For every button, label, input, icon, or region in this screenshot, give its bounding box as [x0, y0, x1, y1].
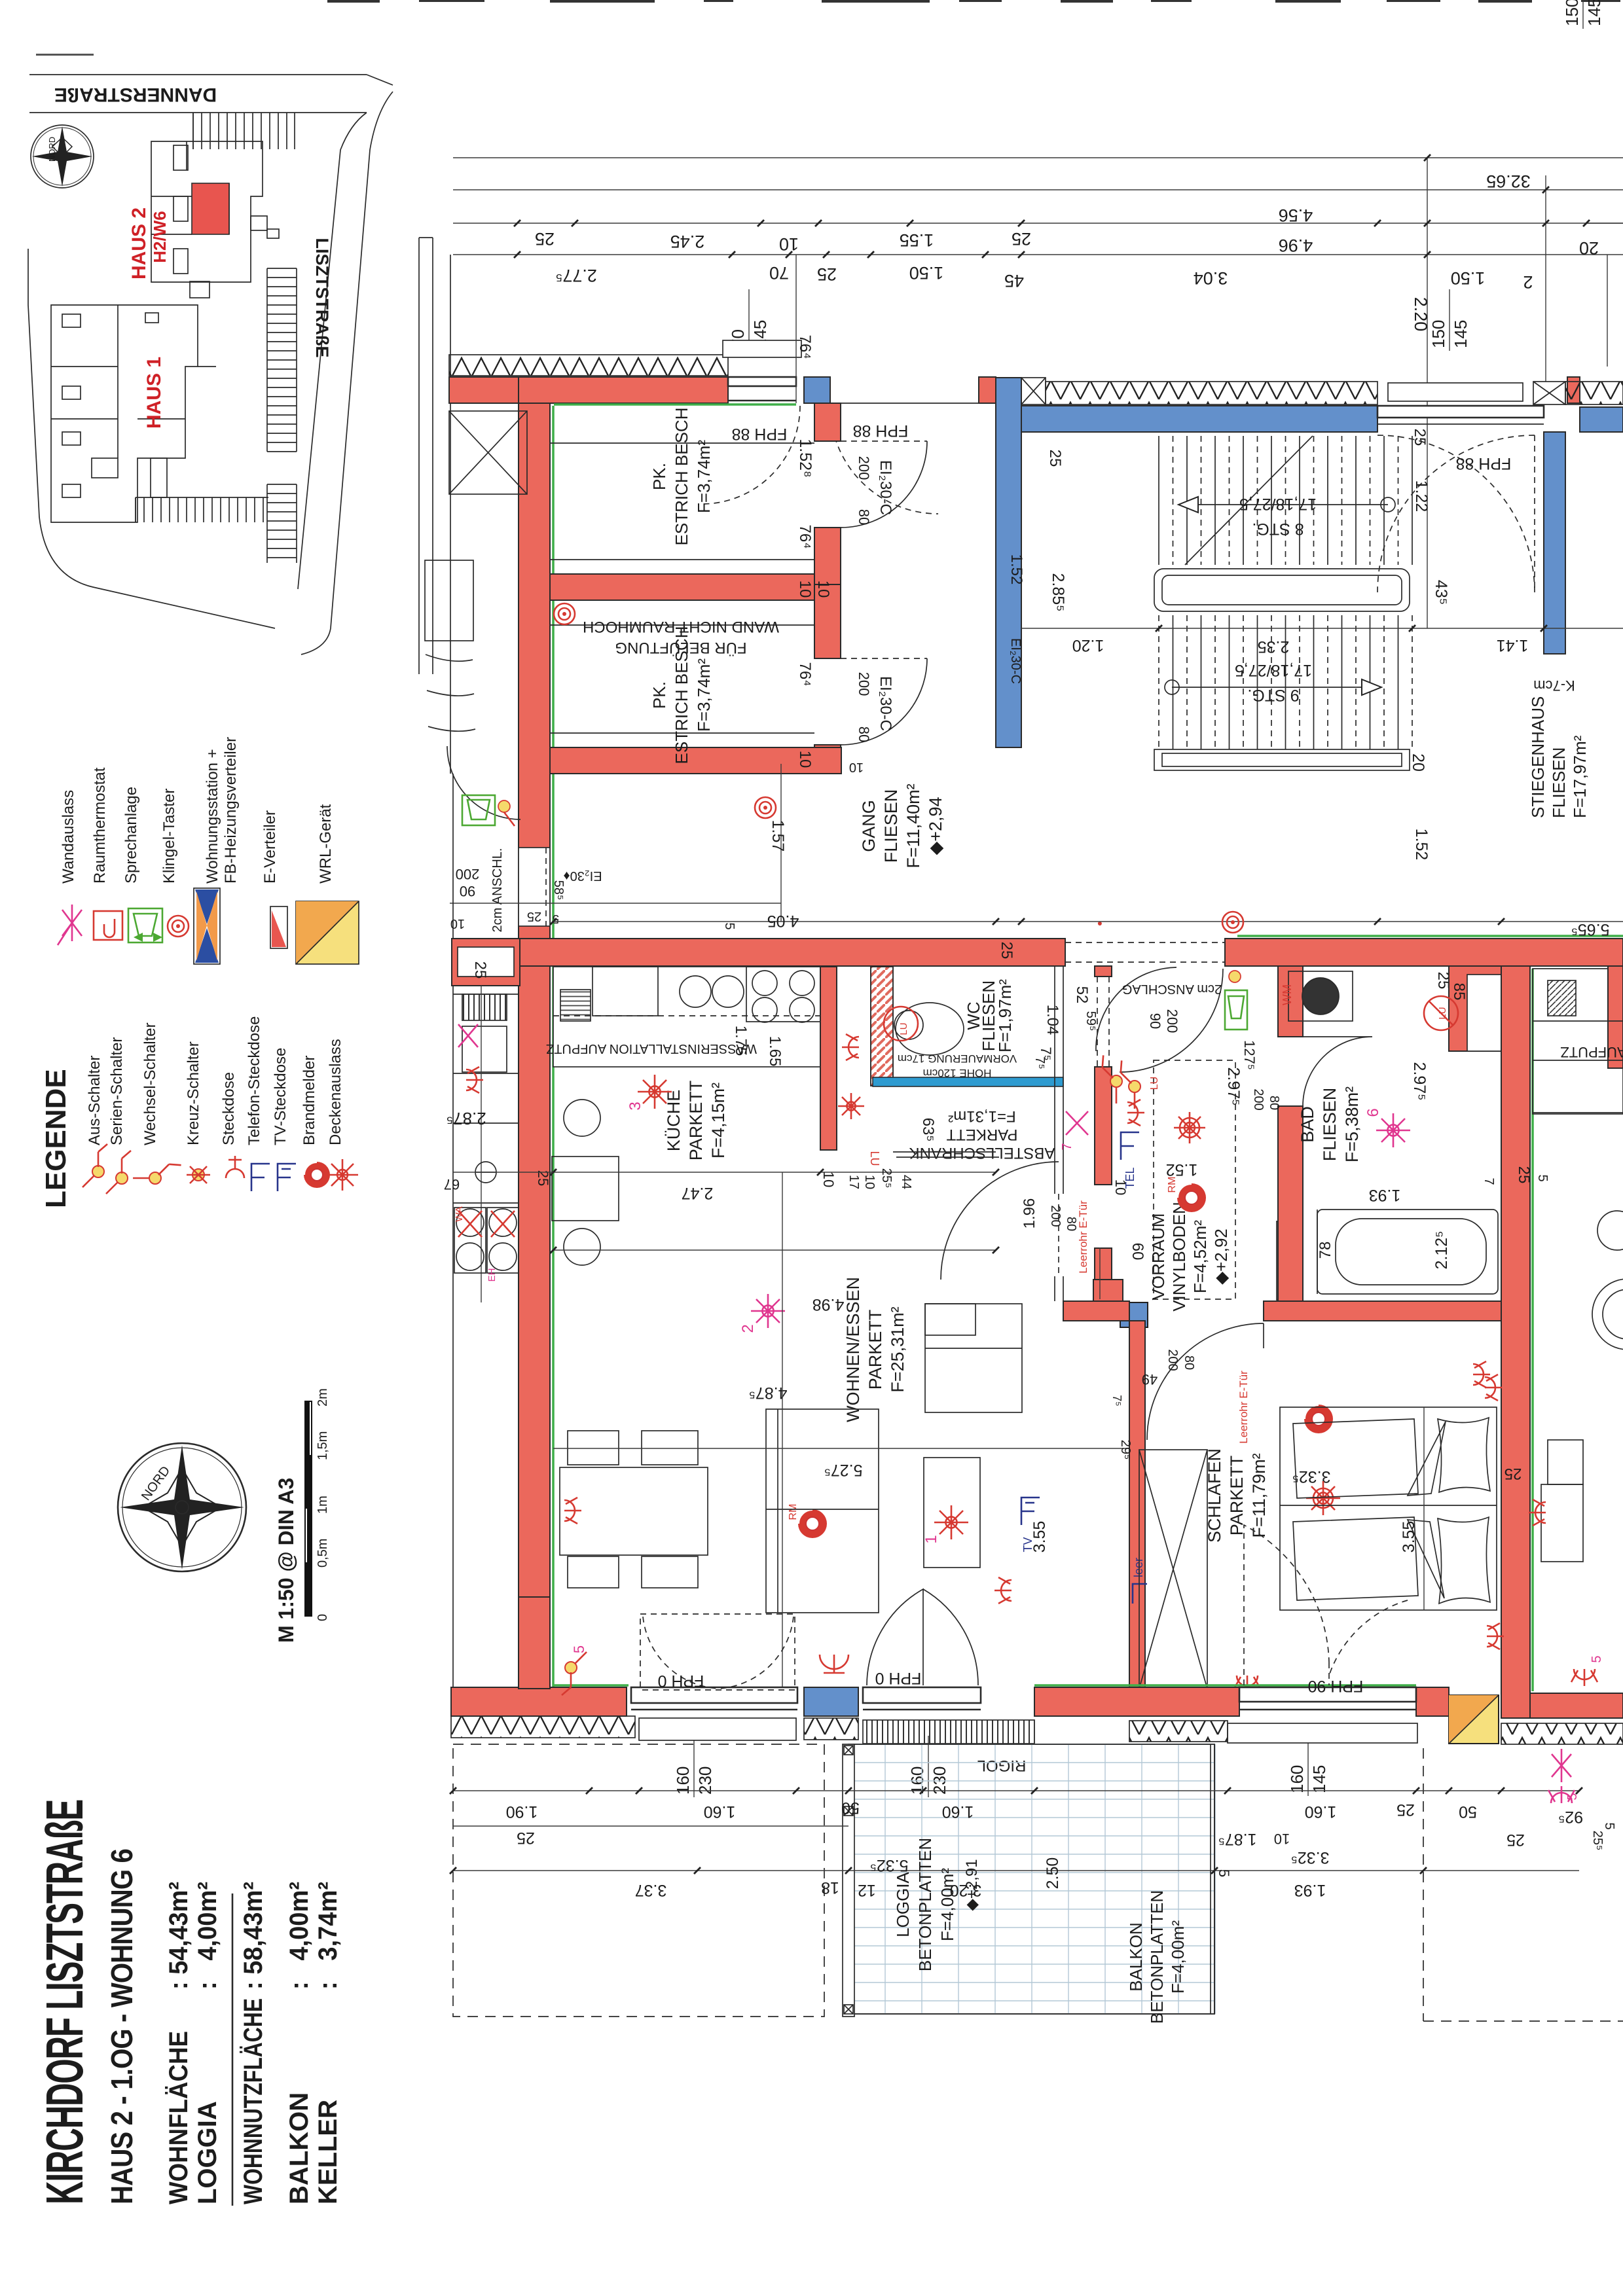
svg-text:TV-Steckdose: TV-Steckdose	[272, 1048, 289, 1145]
svg-text:1.75: 1.75	[732, 1026, 750, 1056]
svg-text:0,5m: 0,5m	[316, 1539, 330, 1568]
svg-text:F=3,74m²: F=3,74m²	[694, 658, 714, 732]
svg-text:25: 25	[1411, 429, 1429, 446]
svg-text:GANG: GANG	[859, 800, 879, 852]
svg-text:2.45: 2.45	[670, 232, 705, 251]
svg-text:5: 5	[1565, 1793, 1580, 1800]
svg-text:25: 25	[1396, 1801, 1415, 1819]
svg-text:KIRCHDORF LISZTSTRAßE: KIRCHDORF LISZTSTRAßE	[35, 1800, 94, 2204]
svg-text:FPH 0: FPH 0	[658, 1672, 704, 1690]
svg-text:1.60: 1.60	[704, 1803, 736, 1821]
svg-text:1.50: 1.50	[1451, 268, 1486, 288]
svg-text:200: 200	[1048, 1205, 1063, 1227]
svg-text:F=4,00m²: F=4,00m²	[938, 1868, 957, 1941]
svg-text:70: 70	[769, 263, 789, 283]
svg-text:EH: EH	[486, 1268, 498, 1282]
svg-text:Klingel-Taster: Klingel-Taster	[160, 789, 178, 884]
svg-text:: 54,43m²: : 54,43m²	[164, 1882, 193, 1990]
svg-text:7: 7	[1060, 1143, 1074, 1150]
svg-text:4.56: 4.56	[1279, 206, 1313, 225]
svg-text:HAUS 2: HAUS 2	[128, 207, 150, 279]
svg-text:LOGGIA: LOGGIA	[193, 2101, 222, 2204]
svg-text:Raumthermostat: Raumthermostat	[91, 767, 109, 884]
svg-text:Deckenauslass: Deckenauslass	[327, 1039, 344, 1145]
svg-text:67: 67	[444, 1176, 460, 1193]
svg-text:1.22: 1.22	[1412, 480, 1431, 512]
svg-text:2.85⁵: 2.85⁵	[1049, 573, 1067, 611]
svg-text:10: 10	[820, 1172, 837, 1187]
svg-text:76⁴: 76⁴	[796, 524, 814, 548]
svg-text:Brandmelder: Brandmelder	[301, 1056, 318, 1145]
svg-text:10: 10	[849, 760, 864, 774]
svg-text:WRL-Gerät: WRL-Gerät	[317, 804, 335, 884]
svg-text:WAND NICHT RAUMHOCH: WAND NICHT RAUMHOCH	[583, 618, 779, 636]
svg-text:leer: leer	[1132, 1558, 1145, 1577]
svg-text:F=1,97m²: F=1,97m²	[995, 979, 1015, 1052]
svg-text:EI₂30-C: EI₂30-C	[877, 460, 894, 515]
svg-text:44: 44	[899, 1175, 913, 1189]
svg-text:8 STG.: 8 STG.	[1252, 520, 1304, 538]
svg-text:29⁵: 29⁵	[1118, 1440, 1133, 1460]
svg-text:25: 25	[517, 1829, 535, 1847]
svg-text:4.98: 4.98	[812, 1295, 845, 1314]
svg-text:3.32⁵: 3.32⁵	[1290, 1848, 1329, 1867]
svg-text:200: 200	[456, 866, 480, 882]
svg-text:160: 160	[1287, 1765, 1307, 1793]
svg-text:Serien-Schalter: Serien-Schalter	[108, 1037, 126, 1145]
svg-text:25⁵: 25⁵	[1590, 1831, 1605, 1851]
svg-text:: 3,74m²: : 3,74m²	[314, 1882, 342, 1990]
svg-text:BETONPLATTEN: BETONPLATTEN	[915, 1838, 935, 1971]
svg-text:76⁴: 76⁴	[796, 662, 814, 686]
svg-text:Telefon-Steckdose: Telefon-Steckdose	[246, 1016, 263, 1145]
svg-text:Wandauslass: Wandauslass	[60, 790, 77, 884]
svg-text:1.93: 1.93	[1294, 1881, 1326, 1899]
svg-text:10: 10	[862, 1175, 877, 1189]
svg-text:1.96: 1.96	[1021, 1198, 1038, 1229]
svg-text:50: 50	[1459, 1803, 1477, 1821]
svg-text:WOHNEN/ESSEN: WOHNEN/ESSEN	[843, 1277, 863, 1422]
svg-text:DANNERSTRAßE: DANNERSTRAßE	[54, 84, 217, 105]
svg-text:200: 200	[1165, 1349, 1180, 1371]
svg-text:PARKETT: PARKETT	[946, 1126, 1017, 1143]
svg-text:BAD: BAD	[1298, 1106, 1317, 1143]
svg-text:Steckdose: Steckdose	[220, 1072, 238, 1145]
svg-text:2m: 2m	[316, 1388, 330, 1407]
svg-text:EI₂30-C: EI₂30-C	[1008, 638, 1023, 684]
svg-text:2.77⁵: 2.77⁵	[555, 266, 597, 285]
svg-text:FB-Heizungsverteiler: FB-Heizungsverteiler	[222, 737, 240, 884]
svg-text:5.32⁵: 5.32⁵	[869, 1856, 908, 1874]
svg-text:5: 5	[571, 1645, 587, 1653]
svg-text:Wohnungsstation +: Wohnungsstation +	[204, 749, 221, 884]
svg-text:1.55: 1.55	[900, 230, 934, 250]
svg-text:1m: 1m	[316, 1496, 330, 1514]
svg-text:25: 25	[998, 942, 1015, 960]
svg-text:150: 150	[1562, 0, 1582, 26]
svg-text:F=11,40m²: F=11,40m²	[903, 783, 923, 868]
svg-text:25: 25	[1046, 450, 1064, 467]
svg-text:1.04: 1.04	[1044, 1005, 1061, 1035]
svg-text:FPH 90: FPH 90	[1308, 1677, 1364, 1695]
svg-text:PARKETT: PARKETT	[686, 1081, 706, 1161]
svg-text:145: 145	[1451, 320, 1470, 348]
svg-text:: 4,00m²: : 4,00m²	[193, 1882, 222, 1990]
svg-text:60: 60	[1129, 1243, 1146, 1261]
svg-text:K-7cm: K-7cm	[1533, 677, 1575, 694]
svg-text:25: 25	[535, 229, 555, 249]
svg-text:FLIESEN: FLIESEN	[1320, 1088, 1340, 1162]
svg-text:78: 78	[1317, 1242, 1334, 1259]
svg-text:3.37: 3.37	[635, 1881, 667, 1899]
svg-text:FPH 88: FPH 88	[732, 425, 788, 443]
svg-text:Wechsel-Schalter: Wechsel-Schalter	[141, 1022, 159, 1145]
svg-text:◆+2,92: ◆+2,92	[1211, 1229, 1231, 1285]
svg-text:20: 20	[1579, 238, 1599, 258]
svg-text:FLIESEN: FLIESEN	[1549, 747, 1569, 818]
svg-text:1.50: 1.50	[909, 263, 944, 283]
svg-text:TEL: TEL	[1123, 1167, 1137, 1189]
svg-text:10: 10	[1274, 1831, 1290, 1847]
svg-text:25: 25	[527, 909, 541, 924]
svg-text:●: ●	[1097, 918, 1103, 928]
svg-text:25⁵: 25⁵	[879, 1168, 894, 1189]
svg-text:200: 200	[1164, 1009, 1180, 1033]
svg-text:RM: RM	[788, 1504, 799, 1520]
svg-text:LU: LU	[1437, 1007, 1448, 1019]
svg-text:WASSERINSTALLATION AUFPUTZ: WASSERINSTALLATION AUFPUTZ	[546, 1041, 757, 1056]
svg-text:80: 80	[1064, 1217, 1078, 1231]
svg-text:LU: LU	[898, 1022, 909, 1035]
svg-text:4.05: 4.05	[767, 912, 799, 930]
svg-text:F=25,31m²: F=25,31m²	[888, 1306, 907, 1392]
svg-text:25: 25	[1504, 1465, 1522, 1482]
svg-text:1.52: 1.52	[1166, 1160, 1198, 1179]
svg-text:200: 200	[1251, 1088, 1266, 1110]
svg-text:85: 85	[1450, 983, 1468, 1001]
svg-text:17,18/27,5: 17,18/27,5	[1239, 495, 1317, 513]
svg-text:Aus-Schalter: Aus-Schalter	[86, 1056, 103, 1145]
svg-text:KELLER: KELLER	[314, 2100, 342, 2204]
svg-text:3.32⁵: 3.32⁵	[1292, 1467, 1330, 1486]
svg-text:52: 52	[1073, 986, 1091, 1004]
svg-text:80: 80	[1267, 1096, 1281, 1110]
svg-text:VINYLBODEN: VINYLBODEN	[1169, 1202, 1189, 1312]
svg-text:: 4,00m²: : 4,00m²	[285, 1882, 314, 1990]
svg-text:1.93: 1.93	[1369, 1186, 1401, 1204]
svg-text:FLIESEN: FLIESEN	[881, 789, 901, 863]
svg-text:Leerrohr E-Tür: Leerrohr E-Tür	[1077, 1200, 1089, 1274]
svg-text:2cm ANSCHLAG: 2cm ANSCHLAG	[1122, 982, 1222, 996]
svg-text:1.20: 1.20	[1072, 636, 1104, 655]
svg-text:BALKON: BALKON	[1126, 1922, 1146, 1992]
svg-text:1.52⁸: 1.52⁸	[796, 439, 814, 477]
svg-text:1.60: 1.60	[1305, 1803, 1337, 1821]
svg-text:1.57: 1.57	[769, 820, 787, 852]
svg-text:F=4,52m²: F=4,52m²	[1190, 1220, 1210, 1293]
svg-text:FPH 88: FPH 88	[1456, 454, 1512, 473]
svg-text:90: 90	[460, 883, 475, 899]
svg-text:LU: LU	[868, 1151, 881, 1166]
svg-text:Leerrohr E-Tür: Leerrohr E-Tür	[1237, 1371, 1250, 1444]
svg-text:3: 3	[627, 1102, 644, 1110]
svg-text:AUFPUTZ: AUFPUTZ	[1560, 1044, 1623, 1060]
svg-text:200: 200	[856, 672, 872, 696]
svg-text:WOHNFLÄCHE: WOHNFLÄCHE	[164, 2031, 193, 2204]
svg-text:PARKETT: PARKETT	[866, 1310, 885, 1390]
svg-text:M 1:50 @ DIN A3: M 1:50 @ DIN A3	[274, 1478, 298, 1643]
svg-text:F=5,38m²: F=5,38m²	[1342, 1086, 1362, 1162]
svg-text:FÜR BELÜFTUNG: FÜR BELÜFTUNG	[615, 639, 746, 656]
svg-text:1.41: 1.41	[1497, 636, 1529, 655]
svg-text:LISZTSTRAßE: LISZTSTRAßE	[312, 238, 332, 358]
svg-text:LU: LU	[1149, 1077, 1160, 1090]
svg-text:7⁵: 7⁵	[1032, 1056, 1047, 1069]
svg-text:80: 80	[1182, 1355, 1196, 1370]
svg-text:9 STG.: 9 STG.	[1247, 686, 1299, 704]
svg-text:5: 5	[1216, 1869, 1232, 1877]
svg-text:18: 18	[821, 1878, 839, 1897]
svg-text:10: 10	[779, 234, 799, 254]
svg-text:4.87⁵: 4.87⁵	[748, 1384, 787, 1402]
svg-text:EI₂30♦: EI₂30♦	[563, 869, 602, 883]
svg-text:1.52: 1.52	[1412, 829, 1431, 861]
svg-text:LEGENDE: LEGENDE	[40, 1069, 72, 1208]
svg-text:80: 80	[856, 726, 872, 742]
svg-text:F=3,74m²: F=3,74m²	[694, 440, 714, 513]
svg-text:WM: WM	[1281, 984, 1294, 1005]
svg-text:59⁵: 59⁵	[1084, 1011, 1098, 1031]
svg-text:HAUS 1: HAUS 1	[143, 357, 165, 429]
svg-text:PARKETT: PARKETT	[1227, 1456, 1247, 1536]
svg-text:◆+2,94: ◆+2,94	[926, 797, 945, 855]
svg-text:2.20: 2.20	[1411, 297, 1431, 332]
svg-text:25: 25	[817, 264, 837, 284]
svg-text:17,18/27,5: 17,18/27,5	[1235, 661, 1312, 679]
svg-text:E-Verteiler: E-Verteiler	[261, 810, 279, 884]
svg-text:0: 0	[316, 1614, 330, 1621]
svg-text:25: 25	[1506, 1831, 1525, 1849]
svg-text:2: 2	[739, 1324, 757, 1333]
svg-text:4.96: 4.96	[1279, 236, 1313, 255]
svg-text:80: 80	[856, 509, 872, 525]
svg-text:WOHNNUTZFLÄCHE: WOHNNUTZFLÄCHE	[239, 1998, 268, 2204]
svg-text:5: 5	[722, 922, 737, 929]
svg-text:2.50: 2.50	[1044, 1857, 1062, 1890]
svg-text:WA: WA	[454, 1206, 465, 1222]
svg-text:VORMAUERUNG 17cm: VORMAUERUNG 17cm	[898, 1052, 1017, 1065]
svg-text:1.90: 1.90	[506, 1803, 538, 1821]
svg-text:12: 12	[858, 1881, 876, 1899]
svg-text:VORRAUM: VORRAUM	[1148, 1213, 1168, 1300]
svg-text:EI₂30-C: EI₂30-C	[877, 676, 894, 731]
svg-text:1.65: 1.65	[766, 1036, 784, 1067]
svg-text:10: 10	[796, 751, 814, 768]
svg-text:1: 1	[922, 1535, 940, 1543]
svg-text:FPH 88: FPH 88	[853, 422, 909, 440]
svg-text:FPH 0: FPH 0	[875, 1669, 922, 1687]
svg-text:3.04: 3.04	[1194, 268, 1228, 288]
svg-text:25: 25	[1515, 1166, 1533, 1184]
svg-text:7⁵: 7⁵	[1110, 1395, 1123, 1406]
svg-text:Kreuz-Schalter: Kreuz-Schalter	[185, 1041, 202, 1145]
svg-text:49: 49	[1142, 1371, 1158, 1388]
svg-text:25: 25	[471, 961, 489, 979]
svg-text:KÜCHE: KÜCHE	[664, 1090, 684, 1152]
svg-text:127⁵: 127⁵	[1241, 1040, 1258, 1070]
svg-text:ABSTELLSCHRANK: ABSTELLSCHRANK	[909, 1144, 1055, 1162]
svg-text:F=11,79m²: F=11,79m²	[1249, 1453, 1269, 1537]
svg-text:F=17,97m²: F=17,97m²	[1570, 735, 1590, 818]
svg-text:F=1,31m²: F=1,31m²	[948, 1107, 1015, 1125]
svg-text:5.65⁵: 5.65⁵	[1571, 920, 1609, 939]
svg-text:200: 200	[856, 456, 872, 480]
svg-text:2.47: 2.47	[682, 1184, 714, 1202]
svg-text:BALKON: BALKON	[285, 2092, 314, 2204]
svg-text:3.20: 3.20	[950, 1881, 982, 1899]
svg-text:45: 45	[1004, 271, 1024, 291]
svg-text:150: 150	[1429, 320, 1448, 348]
svg-text:NORD: NORD	[47, 137, 57, 162]
svg-text:2.97⁵: 2.97⁵	[1410, 1062, 1429, 1100]
svg-text:5.27⁵: 5.27⁵	[824, 1461, 862, 1479]
svg-text:3.55: 3.55	[1030, 1521, 1049, 1553]
svg-text:H2/W6: H2/W6	[150, 211, 170, 262]
svg-text:5: 5	[1590, 1655, 1604, 1662]
svg-text:90: 90	[1147, 1013, 1163, 1029]
svg-text:LOGGIA: LOGGIA	[893, 1871, 913, 1937]
svg-text:76⁴: 76⁴	[796, 334, 814, 359]
svg-text:Sprechanlage: Sprechanlage	[122, 787, 140, 884]
svg-text:6: 6	[1364, 1108, 1382, 1117]
svg-text:10: 10	[814, 581, 832, 598]
svg-text:145: 145	[1584, 0, 1604, 26]
svg-text:PK.: PK.	[649, 463, 669, 490]
svg-text:: 58,43m²: : 58,43m²	[239, 1882, 268, 1990]
svg-text:2.12⁵: 2.12⁵	[1432, 1230, 1451, 1269]
svg-text:25: 25	[1012, 229, 1031, 249]
svg-text:145: 145	[1309, 1765, 1329, 1793]
svg-text:20: 20	[1409, 753, 1427, 772]
svg-text:43⁵: 43⁵	[1432, 580, 1450, 605]
svg-text:1.52: 1.52	[1008, 554, 1025, 585]
svg-text:7: 7	[1482, 1177, 1496, 1185]
svg-text:ESTRICH BESCH: ESTRICH BESCH	[672, 408, 691, 546]
svg-text:F=4,00m²: F=4,00m²	[1168, 1920, 1188, 1994]
svg-text:PK.: PK.	[649, 681, 669, 709]
svg-text:50: 50	[841, 1799, 860, 1817]
svg-text:17: 17	[847, 1175, 861, 1189]
svg-text:10: 10	[796, 581, 814, 598]
svg-text:HAUS 2 - 1.OG - WOHNUNG 6: HAUS 2 - 1.OG - WOHNUNG 6	[105, 1849, 139, 2204]
svg-text:STIEGENHAUS: STIEGENHAUS	[1528, 696, 1548, 818]
svg-text:2: 2	[1523, 272, 1533, 292]
svg-text:RIGOL: RIGOL	[977, 1757, 1027, 1774]
svg-text:5: 5	[1602, 1822, 1616, 1829]
svg-text:1.60: 1.60	[942, 1803, 974, 1821]
svg-text:2.35: 2.35	[1258, 637, 1290, 656]
svg-text:63⁵: 63⁵	[919, 1118, 937, 1142]
svg-text:1,5m: 1,5m	[316, 1431, 330, 1460]
svg-text:5: 5	[1535, 1174, 1550, 1181]
svg-text:32.65: 32.65	[1486, 171, 1531, 191]
svg-text:BETONPLATTEN: BETONPLATTEN	[1147, 1890, 1167, 2024]
svg-text:1.87⁵: 1.87⁵	[1218, 1830, 1256, 1848]
svg-text:F=4,15m²: F=4,15m²	[708, 1083, 728, 1158]
svg-text:2cm ANSCHL.: 2cm ANSCHL.	[490, 848, 505, 933]
svg-text:92⁵: 92⁵	[1558, 1808, 1583, 1826]
svg-text:2.87⁵: 2.87⁵	[446, 1109, 486, 1128]
svg-text:2.97⁵: 2.97⁵	[1224, 1067, 1243, 1105]
